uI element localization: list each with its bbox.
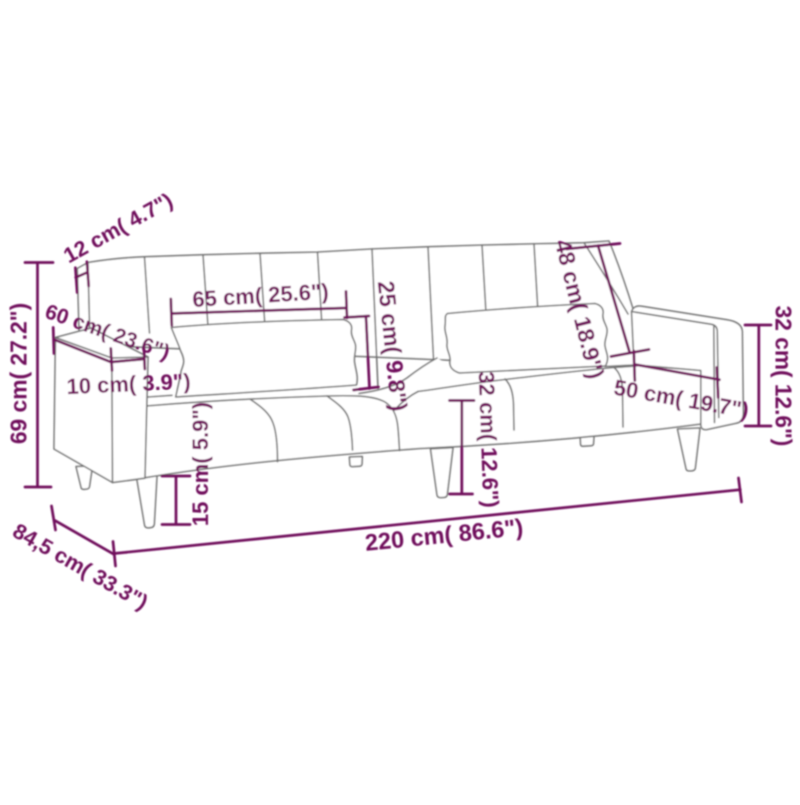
svg-text:15 cm( 5.9"): 15 cm( 5.9")	[188, 402, 213, 526]
svg-text:32 cm( 12.6"): 32 cm( 12.6")	[474, 371, 504, 508]
svg-text:69 cm( 27.2"): 69 cm( 27.2")	[5, 303, 31, 444]
svg-text:32 cm( 12.6"): 32 cm( 12.6")	[771, 306, 797, 447]
